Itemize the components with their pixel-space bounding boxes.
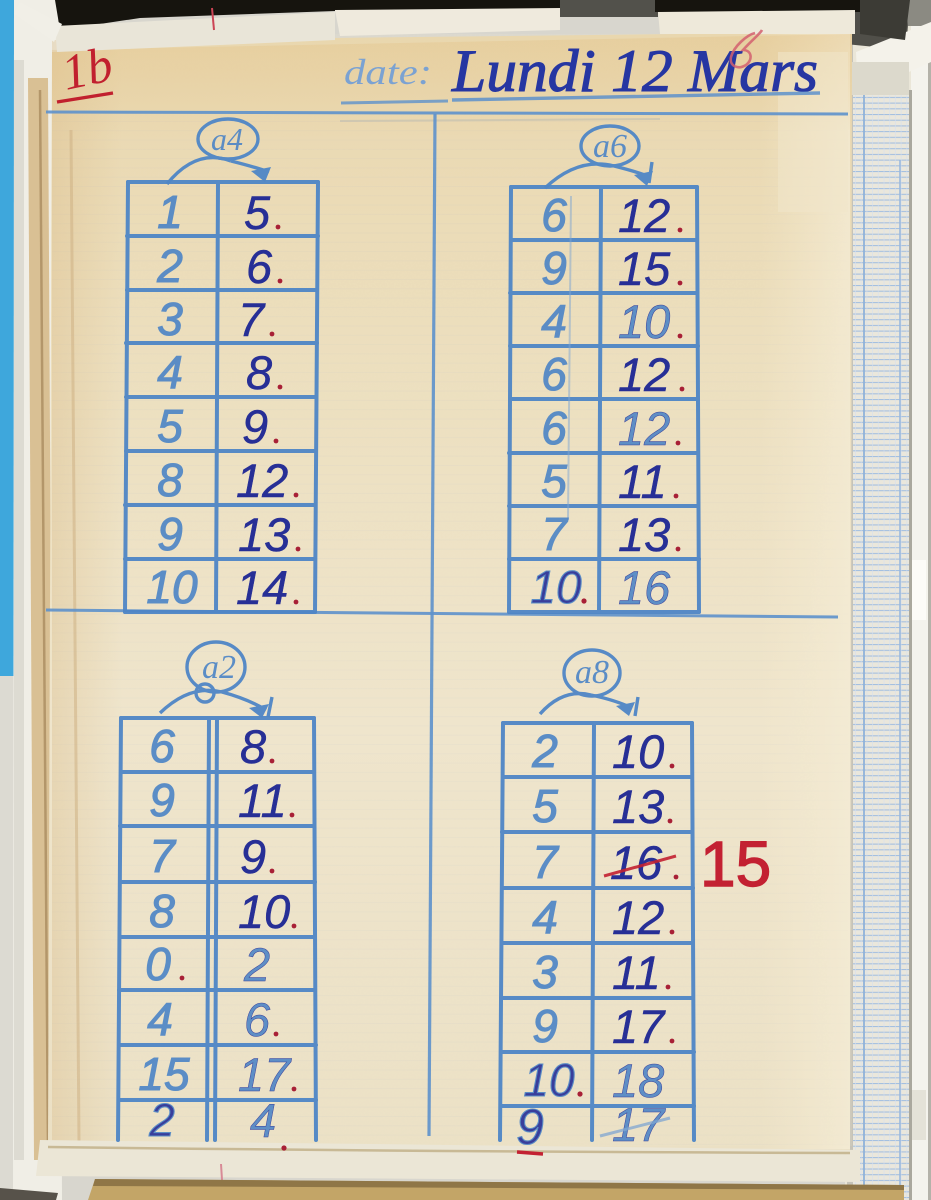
svg-text:date:: date: [344, 52, 432, 92]
svg-text:3: 3 [532, 946, 558, 998]
svg-text:9: 9 [242, 400, 268, 453]
svg-text:3: 3 [157, 293, 183, 345]
svg-text:4: 4 [157, 346, 183, 398]
svg-text:10: 10 [612, 725, 664, 778]
svg-text:2: 2 [243, 938, 270, 991]
svg-text:7: 7 [238, 293, 266, 346]
svg-text:16: 16 [618, 561, 671, 614]
svg-text:7: 7 [149, 830, 176, 882]
svg-text:8: 8 [157, 454, 183, 506]
svg-text:a6: a6 [593, 128, 627, 165]
svg-text:5: 5 [157, 400, 183, 452]
svg-text:11: 11 [618, 455, 667, 508]
svg-text:6: 6 [541, 189, 567, 241]
svg-text:4: 4 [250, 1094, 276, 1147]
svg-text:2: 2 [156, 240, 183, 292]
svg-text:2: 2 [531, 725, 558, 777]
svg-text:15: 15 [618, 242, 671, 295]
svg-text:4: 4 [541, 295, 567, 347]
svg-text:9: 9 [157, 508, 183, 560]
svg-text:7: 7 [532, 836, 559, 888]
svg-text:8: 8 [240, 720, 266, 773]
svg-text:1: 1 [157, 186, 183, 238]
svg-text:0: 0 [145, 938, 171, 990]
svg-text:4: 4 [532, 891, 558, 943]
svg-text:13: 13 [618, 508, 670, 561]
svg-text:6: 6 [541, 402, 567, 454]
svg-text:5: 5 [541, 455, 567, 507]
svg-text:9: 9 [240, 830, 266, 883]
svg-text:13: 13 [612, 780, 664, 833]
svg-text:6: 6 [244, 993, 271, 1046]
svg-text:15: 15 [138, 1048, 190, 1100]
svg-text:11: 11 [612, 946, 661, 999]
svg-text:10: 10 [146, 561, 198, 613]
svg-text:15: 15 [700, 828, 771, 900]
svg-text:12: 12 [618, 348, 670, 401]
svg-text:12: 12 [612, 891, 664, 944]
svg-text:9: 9 [532, 1000, 558, 1052]
svg-text:7: 7 [541, 508, 568, 560]
svg-text:9: 9 [541, 242, 567, 294]
svg-text:11: 11 [238, 774, 287, 827]
svg-text:12: 12 [618, 402, 670, 455]
svg-text:12: 12 [618, 189, 670, 242]
svg-text:9: 9 [516, 1099, 544, 1155]
svg-text:4: 4 [147, 993, 173, 1045]
svg-text:10: 10 [530, 561, 582, 613]
svg-text:10: 10 [618, 295, 670, 348]
svg-text:12: 12 [236, 454, 288, 507]
svg-text:5: 5 [244, 186, 271, 239]
svg-text:5: 5 [532, 780, 558, 832]
svg-text:2: 2 [148, 1094, 175, 1146]
svg-text:a2: a2 [202, 649, 236, 686]
svg-text:6: 6 [246, 240, 273, 293]
svg-text:17: 17 [612, 1000, 666, 1053]
svg-text:8: 8 [246, 346, 272, 399]
svg-text:10: 10 [238, 885, 290, 938]
svg-text:6: 6 [541, 348, 567, 400]
svg-text:8: 8 [149, 885, 175, 937]
svg-text:13: 13 [238, 508, 290, 561]
svg-text:a4: a4 [211, 121, 243, 157]
svg-text:14: 14 [236, 561, 288, 614]
svg-text:6: 6 [149, 720, 175, 772]
svg-text:9: 9 [149, 774, 175, 826]
svg-text:a8: a8 [575, 654, 609, 691]
